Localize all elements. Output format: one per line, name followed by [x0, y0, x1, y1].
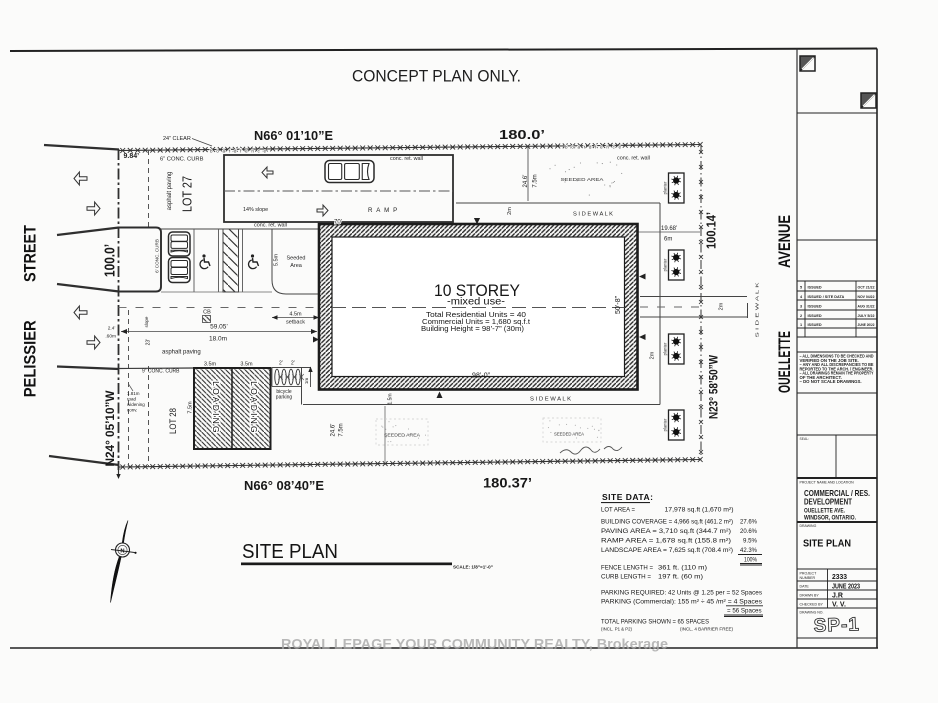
svg-text:conc. ret. wall: conc. ret. wall — [390, 156, 423, 162]
svg-text:road: road — [127, 397, 137, 402]
svg-text:2: 2 — [800, 314, 802, 318]
svg-text:TOTAL PARKING SHOWN = 65 SPA: TOTAL PARKING SHOWN = 65 SPACES — [601, 619, 710, 626]
svg-text:AUG 31/22: AUG 31/22 — [858, 305, 875, 309]
svg-text:CONCEPT PLAN ONLY.: CONCEPT PLAN ONLY. — [352, 68, 521, 86]
svg-text:2.4’: 2.4’ — [108, 326, 116, 332]
svg-text:LOT AREA =: LOT AREA = — [601, 507, 635, 514]
svg-text:Seeded: Seeded — [287, 256, 306, 262]
svg-text:PAVING AREA = 3,710 sq.ft: PAVING AREA = 3,710 sq.ft (344.7 m²) — [601, 528, 731, 535]
svg-text:SEAL:: SEAL: — [800, 437, 810, 441]
svg-text:S I D E W A L K: S I D E W A L K — [755, 282, 760, 337]
svg-text:4.5m: 4.5m — [289, 312, 302, 318]
svg-text:S I D E W A L K: S I D E W A L K — [573, 212, 614, 218]
svg-text:23’: 23’ — [146, 339, 152, 346]
svg-text:– DO NOT SCALE DRAWINGS.: – DO NOT SCALE DRAWINGS. — [800, 379, 862, 384]
svg-text:6m: 6m — [664, 237, 672, 243]
svg-text:planter: planter — [662, 258, 667, 271]
svg-text:PELISSIER: PELISSIER — [21, 320, 40, 397]
svg-text:RAMP: RAMP — [368, 207, 401, 214]
svg-text:SEEDED AREA: SEEDED AREA — [561, 177, 605, 182]
svg-text:.60m: .60m — [105, 334, 116, 340]
svg-text:V. V.: V. V. — [832, 602, 846, 609]
svg-text:1.81m: 1.81m — [127, 391, 140, 396]
svg-text:2m: 2m — [650, 351, 656, 359]
svg-text:2’: 2’ — [291, 361, 295, 367]
svg-text:DRAWING: DRAWING — [800, 524, 817, 528]
svg-text:widening: widening — [127, 402, 145, 407]
svg-text:LOT 28: LOT 28 — [168, 408, 179, 434]
svg-text:9” CONC. CURB: 9” CONC. CURB — [142, 369, 180, 375]
svg-text:2’: 2’ — [279, 361, 283, 367]
svg-text:planter: planter — [662, 181, 667, 194]
svg-text:SITE DATA:: SITE DATA: — [602, 492, 653, 502]
svg-text:CURB LENGTH =: CURB LENGTH = — [601, 574, 651, 581]
svg-text:OUELLETTE: OUELLETTE — [775, 331, 794, 393]
svg-text:7.5m: 7.5m — [188, 401, 194, 414]
svg-text:19.68’: 19.68’ — [661, 226, 677, 232]
svg-text:100%: 100% — [744, 557, 757, 564]
svg-text:N23° 58’50”W: N23° 58’50”W — [709, 355, 721, 419]
svg-text:asphalt paving: asphalt paving — [162, 350, 201, 356]
svg-text:ISSUED: ISSUED — [808, 314, 822, 318]
svg-text:BUILDING COVERAGE = 4,966 sq.f: BUILDING COVERAGE = 4,966 sq.ft (461.2 m… — [601, 519, 733, 526]
svg-text:100.14’: 100.14’ — [705, 212, 719, 249]
svg-text:42.3%: 42.3% — [740, 547, 757, 554]
svg-text:slope: slope — [144, 316, 149, 327]
svg-text:STREET: STREET — [21, 224, 40, 282]
svg-text:PARKING (Commercial): 155 m² ÷: PARKING (Commercial): 155 m² ÷ 45 /m² = … — [601, 599, 762, 606]
svg-text:SITE PLAN: SITE PLAN — [242, 541, 338, 563]
svg-text:PARKING REQUIRED: 42 Units @: PARKING REQUIRED: 42 Units @ 1.25 per = … — [601, 590, 762, 597]
svg-text:SCALE: 1/8”=1’-0”: SCALE: 1/8”=1’-0” — [453, 565, 493, 570]
svg-text:setback: setback — [286, 320, 305, 326]
svg-text:OCT 21/22: OCT 21/22 — [858, 286, 875, 290]
svg-text:361 ft. (110 m): 361 ft. (110 m) — [658, 565, 707, 572]
svg-text:JUNE 20/22: JUNE 20/22 — [858, 323, 875, 327]
svg-text:ISSUED: ISSUED — [808, 323, 822, 327]
svg-text:180.0’: 180.0’ — [499, 127, 545, 142]
svg-text:N66° 08’40”E: N66° 08’40”E — [244, 478, 324, 493]
svg-text:b o a r d f e n c e: b o a r d f e n c e — [565, 145, 622, 150]
svg-text:WINDSOR, ONTARIO.: WINDSOR, ONTARIO. — [804, 516, 856, 522]
svg-text:ISSUED: ISSUED — [808, 286, 822, 290]
svg-text:conv.: conv. — [127, 408, 137, 413]
svg-text:3: 3 — [800, 305, 802, 309]
svg-text:planter: planter — [662, 418, 667, 431]
svg-text:(INCL. 4 BARRIER FREE): (INCL. 4 BARRIER FREE) — [680, 627, 733, 632]
svg-text:RAMP AREA = 1,678 sq.ft: RAMP AREA = 1,678 sq.ft (155.8 m²) — [601, 538, 731, 545]
svg-text:NOV 04/22: NOV 04/22 — [858, 295, 875, 299]
svg-text:27.6%: 27.6% — [740, 519, 757, 526]
svg-text:JULY 5/22: JULY 5/22 — [858, 314, 875, 318]
svg-text:AVENUE: AVENUE — [775, 215, 794, 268]
svg-text:LANDSCAPE AREA = 7,625 sq.ft: LANDSCAPE AREA = 7,625 sq.ft (708.4 m²) — [601, 547, 733, 554]
svg-text:7.5m: 7.5m — [339, 423, 345, 436]
svg-text:CHECKED BY: CHECKED BY — [800, 603, 824, 607]
svg-text:197 ft. (60 m): 197 ft. (60 m) — [658, 574, 703, 581]
svg-text:ISSUED: ISSUED — [808, 305, 822, 309]
svg-text:S I D E W A L K: S I D E W A L K — [530, 397, 572, 403]
svg-text:SP-1: SP-1 — [813, 614, 860, 637]
svg-text:SEEDED AREA: SEEDED AREA — [384, 433, 420, 438]
svg-text:5.5m: 5.5m — [274, 253, 280, 266]
svg-text:50’-8”: 50’-8” — [615, 295, 622, 314]
svg-text:SITE PLAN: SITE PLAN — [803, 538, 851, 550]
svg-text:DRAWN BY: DRAWN BY — [800, 594, 820, 598]
svg-text:1.5m: 1.5m — [388, 393, 394, 404]
svg-text:17,978 sq.ft (1,670 m²): 17,978 sq.ft (1,670 m²) — [665, 507, 734, 514]
svg-text:LOADING: LOADING — [211, 381, 221, 435]
svg-text:100.0’: 100.0’ — [102, 244, 119, 277]
svg-text:b o a r d f e n c e: b o a r d f e n c e — [210, 149, 267, 154]
svg-text:SEEDED AREA: SEEDED AREA — [554, 432, 584, 437]
svg-text:Building Height = 98’-7” (: Building Height = 98’-7” (30m) — [421, 326, 524, 333]
svg-text:7.5m: 7.5m — [533, 174, 539, 187]
svg-text:18.0m: 18.0m — [209, 336, 227, 343]
svg-text:180.37’: 180.37’ — [483, 475, 532, 491]
svg-text:59.05’: 59.05’ — [210, 324, 228, 331]
svg-text:6’ CONC. CURB: 6’ CONC. CURB — [155, 239, 160, 273]
svg-text:98’-0”: 98’-0” — [472, 373, 491, 380]
svg-text:20.6%: 20.6% — [740, 528, 757, 535]
svg-text:2m: 2m — [507, 207, 513, 215]
svg-text:9.84’: 9.84’ — [124, 153, 140, 160]
svg-text:24” CLEAR: 24” CLEAR — [163, 136, 191, 142]
svg-text:ROYAL LEPAGE YOUR COMMUNITY RE: ROYAL LEPAGE YOUR COMMUNITY REALTY, Brok… — [281, 636, 668, 652]
svg-text:J.R: J.R — [832, 593, 843, 600]
svg-text:JUNE 2023: JUNE 2023 — [832, 584, 860, 591]
svg-text:DRAWING NO.: DRAWING NO. — [800, 611, 824, 615]
svg-text:3.5m: 3.5m — [204, 362, 217, 368]
svg-text:conc. ret. wall: conc. ret. wall — [254, 223, 287, 229]
svg-text:2m: 2m — [719, 302, 725, 310]
svg-text:N66° 01’10”E: N66° 01’10”E — [254, 128, 333, 143]
svg-text:DEVELOPMENT: DEVELOPMENT — [804, 497, 852, 507]
svg-text:LOADING: LOADING — [249, 381, 259, 435]
svg-text:DATE: DATE — [800, 585, 810, 589]
svg-text:parking: parking — [276, 395, 293, 401]
svg-text:planter: planter — [662, 342, 667, 355]
svg-text:3.5m: 3.5m — [240, 362, 253, 368]
svg-text:Total Residential Units =: Total Residential Units = 40 — [426, 312, 526, 319]
svg-text:6” CONC. CURB: 6” CONC. CURB — [160, 157, 204, 163]
svg-text:1m: 1m — [304, 378, 309, 385]
svg-text:-mixed use-: -mixed use- — [447, 296, 506, 308]
svg-text:CB: CB — [203, 310, 211, 316]
svg-text:(INCL. P1 & P2): (INCL. P1 & P2) — [601, 627, 632, 632]
svg-text:24.6’: 24.6’ — [331, 423, 337, 436]
svg-text:asphalt paving: asphalt paving — [167, 172, 173, 211]
svg-text:2333: 2333 — [832, 574, 847, 581]
svg-text:9.5%: 9.5% — [743, 538, 757, 545]
svg-text:ISSUED / SITE DATA: ISSUED / SITE DATA — [808, 295, 845, 299]
svg-text:N24° 05’10”W: N24° 05’10”W — [105, 390, 117, 466]
svg-text:5: 5 — [800, 286, 802, 290]
svg-text:conc. ret. wall: conc. ret. wall — [617, 156, 650, 162]
svg-text:FENCE LENGTH =: FENCE LENGTH = — [601, 565, 653, 572]
svg-text:Area: Area — [290, 263, 303, 269]
svg-text:70’: 70’ — [334, 220, 342, 226]
svg-text:OUELLETTE AVE.: OUELLETTE AVE. — [804, 509, 845, 515]
svg-text:14% slope: 14% slope — [243, 207, 268, 213]
svg-text:LOT 27: LOT 27 — [180, 176, 195, 212]
svg-text:24.6’: 24.6’ — [523, 174, 529, 187]
svg-text:= 56 Spaces: = 56 Spaces — [727, 608, 762, 615]
svg-text:NUMBER: NUMBER — [800, 576, 816, 580]
svg-text:1: 1 — [800, 323, 802, 327]
svg-text:Commercial Units = 1,680 s: Commercial Units = 1,680 sq.f.t — [422, 319, 530, 326]
svg-text:PROJECT NAME AND LOCATION: PROJECT NAME AND LOCATION — [800, 481, 855, 485]
